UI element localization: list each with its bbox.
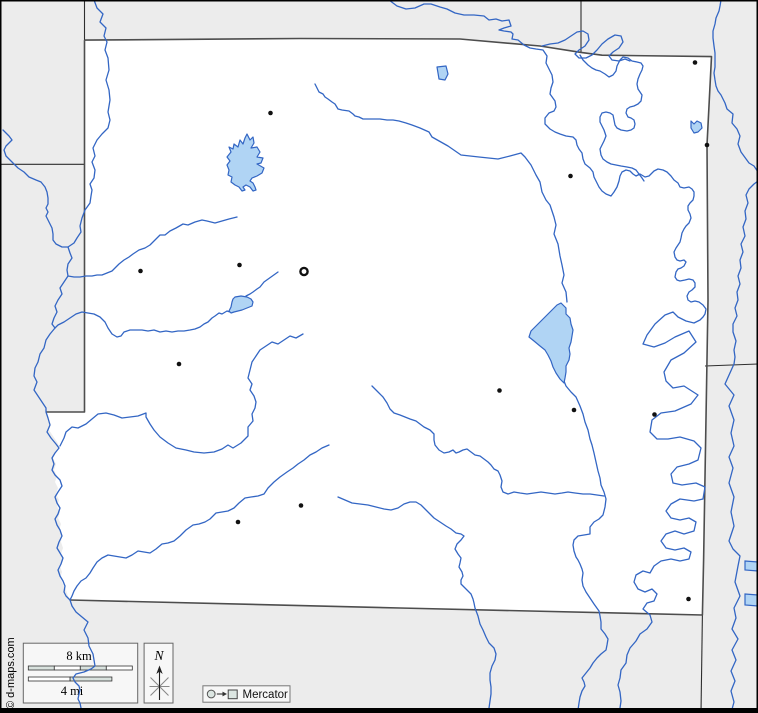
svg-text:Mercator: Mercator [243,689,289,701]
svg-text:© d-maps.com: © d-maps.com [5,637,17,709]
svg-text:N: N [153,648,164,663]
svg-text:8 km: 8 km [66,649,92,663]
